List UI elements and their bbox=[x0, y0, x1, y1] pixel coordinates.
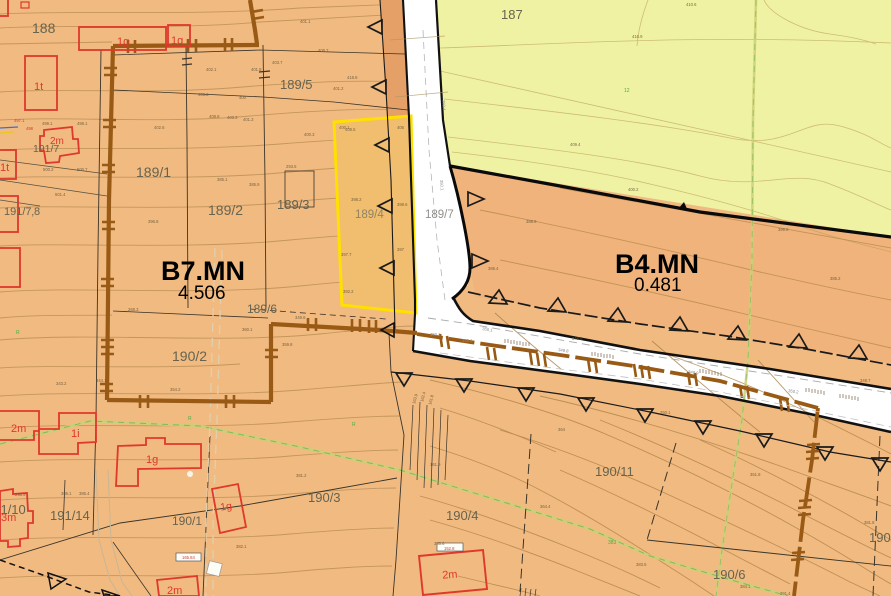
svg-text:0.481: 0.481 bbox=[634, 275, 682, 296]
svg-text:396.8: 396.8 bbox=[148, 219, 159, 224]
svg-text:397: 397 bbox=[397, 247, 405, 252]
svg-text:2m: 2m bbox=[50, 136, 64, 147]
svg-text:402.1: 402.1 bbox=[206, 67, 217, 72]
svg-text:1g: 1g bbox=[171, 35, 183, 47]
svg-text:189/6: 189/6 bbox=[247, 302, 277, 316]
svg-text:190/4: 190/4 bbox=[446, 508, 479, 523]
svg-text:364: 364 bbox=[558, 427, 566, 432]
svg-text:383: 383 bbox=[608, 540, 617, 546]
svg-text:388.9: 388.9 bbox=[526, 219, 537, 224]
svg-text:351.8: 351.8 bbox=[750, 472, 761, 477]
svg-text:385.1: 385.1 bbox=[217, 177, 228, 182]
svg-text:1t: 1t bbox=[0, 162, 9, 174]
svg-text:418.8: 418.8 bbox=[347, 75, 358, 80]
svg-text:R: R bbox=[188, 416, 192, 422]
svg-text:190/11: 190/11 bbox=[595, 464, 634, 479]
svg-text:403.3: 403.3 bbox=[198, 92, 209, 97]
svg-text:189/7: 189/7 bbox=[425, 209, 454, 221]
svg-text:383.5: 383.5 bbox=[636, 562, 647, 567]
svg-text:293.5: 293.5 bbox=[286, 164, 297, 169]
svg-text:408.8: 408.8 bbox=[209, 114, 220, 119]
svg-text:189/4: 189/4 bbox=[355, 209, 384, 221]
svg-text:190/6: 190/6 bbox=[713, 567, 746, 582]
svg-text:350.1: 350.1 bbox=[430, 332, 441, 337]
svg-text:1t: 1t bbox=[34, 81, 43, 93]
svg-text:190/3: 190/3 bbox=[308, 490, 341, 505]
svg-text:3m: 3m bbox=[1, 512, 16, 524]
svg-text:364.4: 364.4 bbox=[540, 504, 551, 509]
svg-text:189/3: 189/3 bbox=[277, 197, 310, 212]
svg-text:188: 188 bbox=[32, 20, 56, 36]
svg-text:344.1: 344.1 bbox=[96, 378, 107, 383]
svg-text:4.506: 4.506 bbox=[178, 283, 226, 304]
svg-text:190/2: 190/2 bbox=[172, 348, 207, 364]
svg-text:R: R bbox=[352, 422, 356, 428]
svg-text:400: 400 bbox=[239, 95, 247, 100]
svg-text:1g: 1g bbox=[146, 454, 158, 466]
svg-text:498: 498 bbox=[26, 126, 34, 131]
svg-text:400.3: 400.3 bbox=[304, 132, 315, 137]
svg-text:B7.MN: B7.MN bbox=[161, 256, 245, 286]
svg-text:1g: 1g bbox=[219, 500, 232, 514]
svg-text:2m: 2m bbox=[442, 569, 458, 582]
svg-text:268.3: 268.3 bbox=[128, 307, 139, 312]
svg-text:381.2: 381.2 bbox=[296, 473, 307, 478]
svg-text:190/5: 190/5 bbox=[869, 530, 891, 545]
svg-text:350.1: 350.1 bbox=[439, 180, 445, 191]
svg-text:382.1: 382.1 bbox=[236, 544, 247, 549]
svg-text:501.4: 501.4 bbox=[55, 192, 66, 197]
svg-text:401.3: 401.3 bbox=[243, 117, 254, 122]
svg-text:189/1: 189/1 bbox=[136, 164, 171, 180]
svg-text:385.2: 385.2 bbox=[830, 276, 841, 281]
svg-text:406: 406 bbox=[397, 125, 405, 130]
svg-text:401.8: 401.8 bbox=[251, 67, 262, 72]
svg-text:152.8: 152.8 bbox=[444, 546, 455, 551]
svg-text:385.4: 385.4 bbox=[79, 491, 90, 496]
svg-text:343.2: 343.2 bbox=[56, 381, 67, 386]
svg-text:354.2: 354.2 bbox=[170, 387, 181, 392]
svg-text:402.6: 402.6 bbox=[154, 125, 165, 130]
svg-text:391.4: 391.4 bbox=[780, 591, 791, 596]
svg-text:401.1: 401.1 bbox=[300, 19, 311, 24]
svg-text:298.9: 298.9 bbox=[15, 492, 26, 497]
svg-text:191/14: 191/14 bbox=[50, 508, 90, 523]
svg-text:349.1: 349.1 bbox=[462, 338, 473, 343]
svg-text:348.8: 348.8 bbox=[572, 336, 583, 341]
svg-text:2m: 2m bbox=[11, 423, 26, 435]
svg-text:189/2: 189/2 bbox=[208, 202, 243, 218]
svg-text:191/7‚8: 191/7‚8 bbox=[4, 206, 40, 218]
svg-text:497.1: 497.1 bbox=[14, 118, 25, 123]
svg-text:190/1: 190/1 bbox=[172, 514, 202, 528]
svg-text:500.7: 500.7 bbox=[77, 167, 88, 172]
svg-text:410.6: 410.6 bbox=[686, 2, 697, 7]
svg-text:2m: 2m bbox=[167, 585, 182, 596]
svg-text:12: 12 bbox=[624, 88, 630, 94]
svg-text:187: 187 bbox=[501, 7, 523, 22]
svg-text:408.7: 408.7 bbox=[318, 48, 329, 53]
svg-text:348.7: 348.7 bbox=[860, 378, 871, 383]
svg-text:408.5: 408.5 bbox=[345, 127, 356, 132]
svg-text:401.2: 401.2 bbox=[333, 86, 344, 91]
svg-text:165.84: 165.84 bbox=[182, 555, 195, 560]
svg-text:498.1: 498.1 bbox=[77, 121, 88, 126]
svg-text:500.2: 500.2 bbox=[43, 167, 54, 172]
svg-text:409.4: 409.4 bbox=[570, 142, 581, 147]
svg-text:403.7: 403.7 bbox=[272, 60, 283, 65]
svg-text:403.3: 403.3 bbox=[227, 115, 238, 120]
svg-text:385.9: 385.9 bbox=[249, 182, 260, 187]
svg-text:398.6: 398.6 bbox=[397, 202, 408, 207]
svg-text:360.1: 360.1 bbox=[242, 327, 253, 332]
svg-text:399.8: 399.8 bbox=[778, 227, 789, 232]
svg-text:R: R bbox=[16, 330, 20, 336]
svg-text:499.1: 499.1 bbox=[42, 121, 53, 126]
svg-text:384.1: 384.1 bbox=[740, 584, 751, 589]
svg-text:359.8: 359.8 bbox=[282, 342, 293, 347]
svg-text:1g: 1g bbox=[117, 36, 129, 48]
svg-text:386.1: 386.1 bbox=[61, 491, 72, 496]
svg-text:350.1: 350.1 bbox=[660, 410, 671, 415]
svg-text:381.8: 381.8 bbox=[864, 520, 875, 525]
svg-text:189/5: 189/5 bbox=[280, 77, 313, 92]
svg-text:1i: 1i bbox=[71, 428, 80, 440]
svg-text:398.2: 398.2 bbox=[351, 197, 362, 202]
svg-text:350.4: 350.4 bbox=[441, 100, 447, 111]
svg-text:392.2: 392.2 bbox=[343, 289, 354, 294]
svg-text:416.9: 416.9 bbox=[632, 34, 643, 39]
svg-text:400.2: 400.2 bbox=[628, 187, 639, 192]
svg-text:349.6: 349.6 bbox=[295, 315, 306, 320]
svg-text:386.4: 386.4 bbox=[488, 266, 499, 271]
svg-text:397.7: 397.7 bbox=[341, 252, 352, 257]
svg-text:161.9: 161.9 bbox=[430, 462, 441, 467]
